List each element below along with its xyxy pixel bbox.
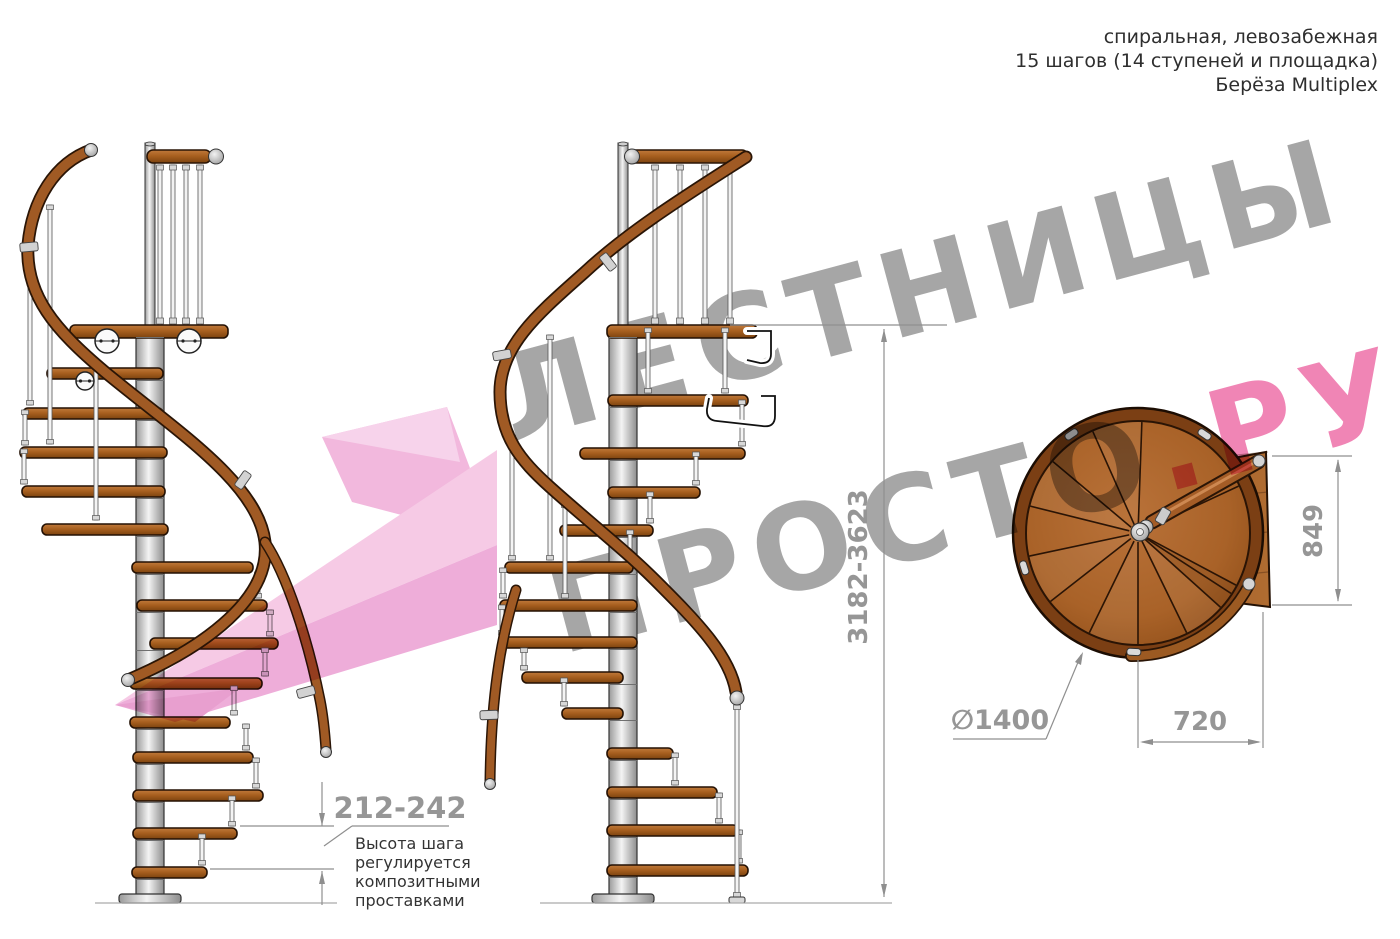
- platform-baluster: [728, 165, 732, 325]
- tread: [133, 790, 263, 801]
- tread: [500, 600, 637, 611]
- step-note-line1: Высота шага: [355, 834, 464, 853]
- platform-baluster: [171, 165, 175, 325]
- tread: [580, 448, 745, 459]
- platform-baluster: [653, 165, 657, 325]
- tread: [133, 828, 237, 839]
- handrail-joint: [20, 242, 39, 253]
- handrail-cap: [85, 144, 98, 157]
- handrail-cap: [730, 691, 744, 705]
- dim-diameter: ∅1400: [951, 705, 1049, 736]
- platform-tread: [607, 325, 757, 338]
- spec-type: спиральная, левозабежная: [1104, 26, 1378, 48]
- tread: [608, 395, 748, 406]
- handrail-cap: [485, 779, 496, 790]
- drawing-canvas: ЛЕСТНИЦЫ ПРОСТО.РУ: [0, 0, 1400, 939]
- platform-baluster: [678, 165, 682, 325]
- tread: [607, 787, 717, 798]
- elevation-views-and-dimensions: 3182-3623 849 720 ∅1400 212-242 Высота ш…: [0, 0, 1400, 939]
- tread: [607, 748, 673, 759]
- tread: [608, 487, 700, 498]
- tread: [20, 447, 167, 458]
- baluster: [723, 328, 727, 393]
- dim-step-height: 212-242: [333, 791, 466, 825]
- tread: [22, 486, 165, 497]
- platform-baluster: [158, 165, 162, 325]
- handrail-joint: [296, 685, 316, 698]
- step-note-line3: композитными: [355, 872, 481, 891]
- baluster: [548, 335, 552, 560]
- dim-total-height: 3182-3623: [844, 489, 874, 645]
- tread: [132, 867, 207, 878]
- handrail-cap: [122, 674, 135, 687]
- rail-post-foot: [729, 897, 745, 903]
- platform-baluster: [198, 165, 202, 325]
- baluster: [23, 410, 27, 445]
- baluster: [22, 449, 26, 484]
- tread: [562, 708, 623, 719]
- handrail-cap: [209, 149, 224, 164]
- baluster: [94, 365, 98, 520]
- tread: [42, 524, 168, 535]
- tread: [607, 865, 748, 876]
- baluster: [563, 503, 567, 598]
- pole-upper: [145, 143, 155, 331]
- elevation-view-middle: [480, 142, 775, 903]
- tread: [132, 562, 253, 573]
- dim-platform-width: 720: [1173, 707, 1227, 737]
- tread: [133, 752, 253, 763]
- handrail-joint: [480, 710, 498, 720]
- tread: [505, 562, 633, 573]
- baluster: [646, 328, 650, 393]
- handrail-cap: [625, 149, 640, 164]
- step-note-line4: проставками: [355, 891, 465, 910]
- elevation-view-left: [20, 142, 332, 903]
- pole-main: [609, 333, 637, 897]
- pole-base-flange: [119, 894, 181, 903]
- spec-material: Берёза Multiplex: [1215, 74, 1378, 96]
- spec-steps: 15 шагов (14 ступеней и площадка): [1015, 50, 1378, 72]
- handrail-cap: [321, 747, 332, 758]
- tread: [500, 637, 637, 648]
- tread: [607, 825, 738, 836]
- platform-handrail: [147, 150, 211, 163]
- tread: [522, 672, 623, 683]
- step-note-line2: регулируется: [355, 853, 471, 872]
- platform-tread: [70, 325, 228, 338]
- pole-base-flange: [592, 894, 654, 903]
- dim-platform-depth: 849: [1299, 504, 1329, 558]
- baluster: [735, 705, 739, 897]
- baluster: [694, 452, 698, 485]
- platform-baluster: [184, 165, 188, 325]
